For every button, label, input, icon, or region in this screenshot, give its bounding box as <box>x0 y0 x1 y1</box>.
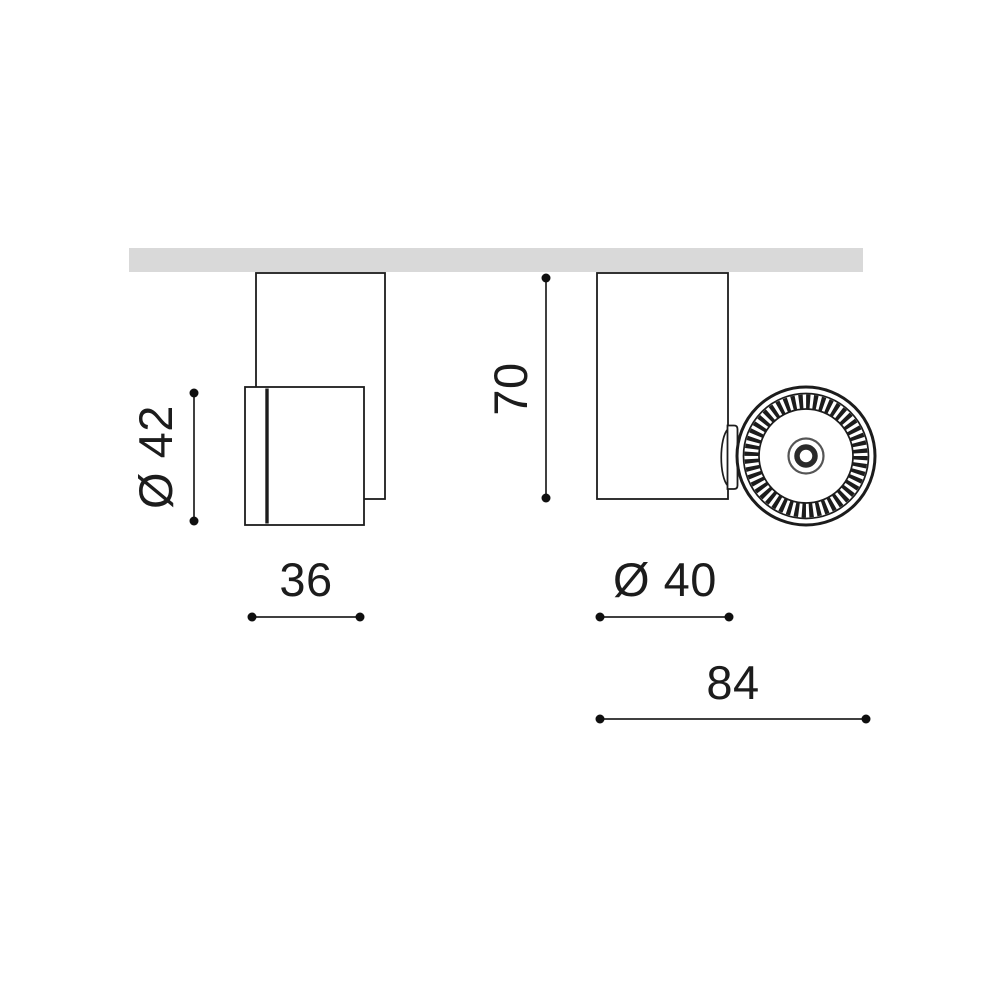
technical-drawing-canvas: Ø 42 36 70 Ø 40 84 <box>0 0 1000 1000</box>
dim-endpoint-dot <box>542 494 551 503</box>
dimension-head-depth: 36 <box>248 553 365 622</box>
dim-endpoint-dot <box>248 613 257 622</box>
dimension-body-height: 70 <box>484 274 551 503</box>
knob-view-fixture <box>597 273 875 525</box>
dim-endpoint-dot <box>542 274 551 283</box>
dim-endpoint-dot <box>190 517 199 526</box>
dim-label-head-diameter: Ø 42 <box>129 405 182 509</box>
side-view-spot-head <box>245 387 364 525</box>
dim-label-overall-depth: 84 <box>706 656 759 709</box>
dim-endpoint-dot <box>596 715 605 724</box>
dim-endpoint-dot <box>862 715 871 724</box>
ceiling-bar <box>129 248 863 272</box>
side-view-fixture <box>245 273 385 525</box>
knurled-knob <box>737 387 875 525</box>
knob-center-screw <box>797 447 815 465</box>
spotlight-dimension-drawing: Ø 42 36 70 Ø 40 84 <box>0 0 1000 1000</box>
dim-label-head-depth: 36 <box>279 553 332 606</box>
dim-endpoint-dot <box>596 613 605 622</box>
dim-endpoint-dot <box>725 613 734 622</box>
dimension-body-diameter: Ø 40 <box>596 553 734 622</box>
dimension-overall-depth: 84 <box>596 656 871 724</box>
dim-label-body-diameter: Ø 40 <box>613 553 717 606</box>
dim-endpoint-dot <box>190 389 199 398</box>
dim-endpoint-dot <box>356 613 365 622</box>
dimension-head-diameter: Ø 42 <box>129 389 199 526</box>
knob-view-body <box>597 273 728 499</box>
dim-label-body-height: 70 <box>484 362 537 415</box>
